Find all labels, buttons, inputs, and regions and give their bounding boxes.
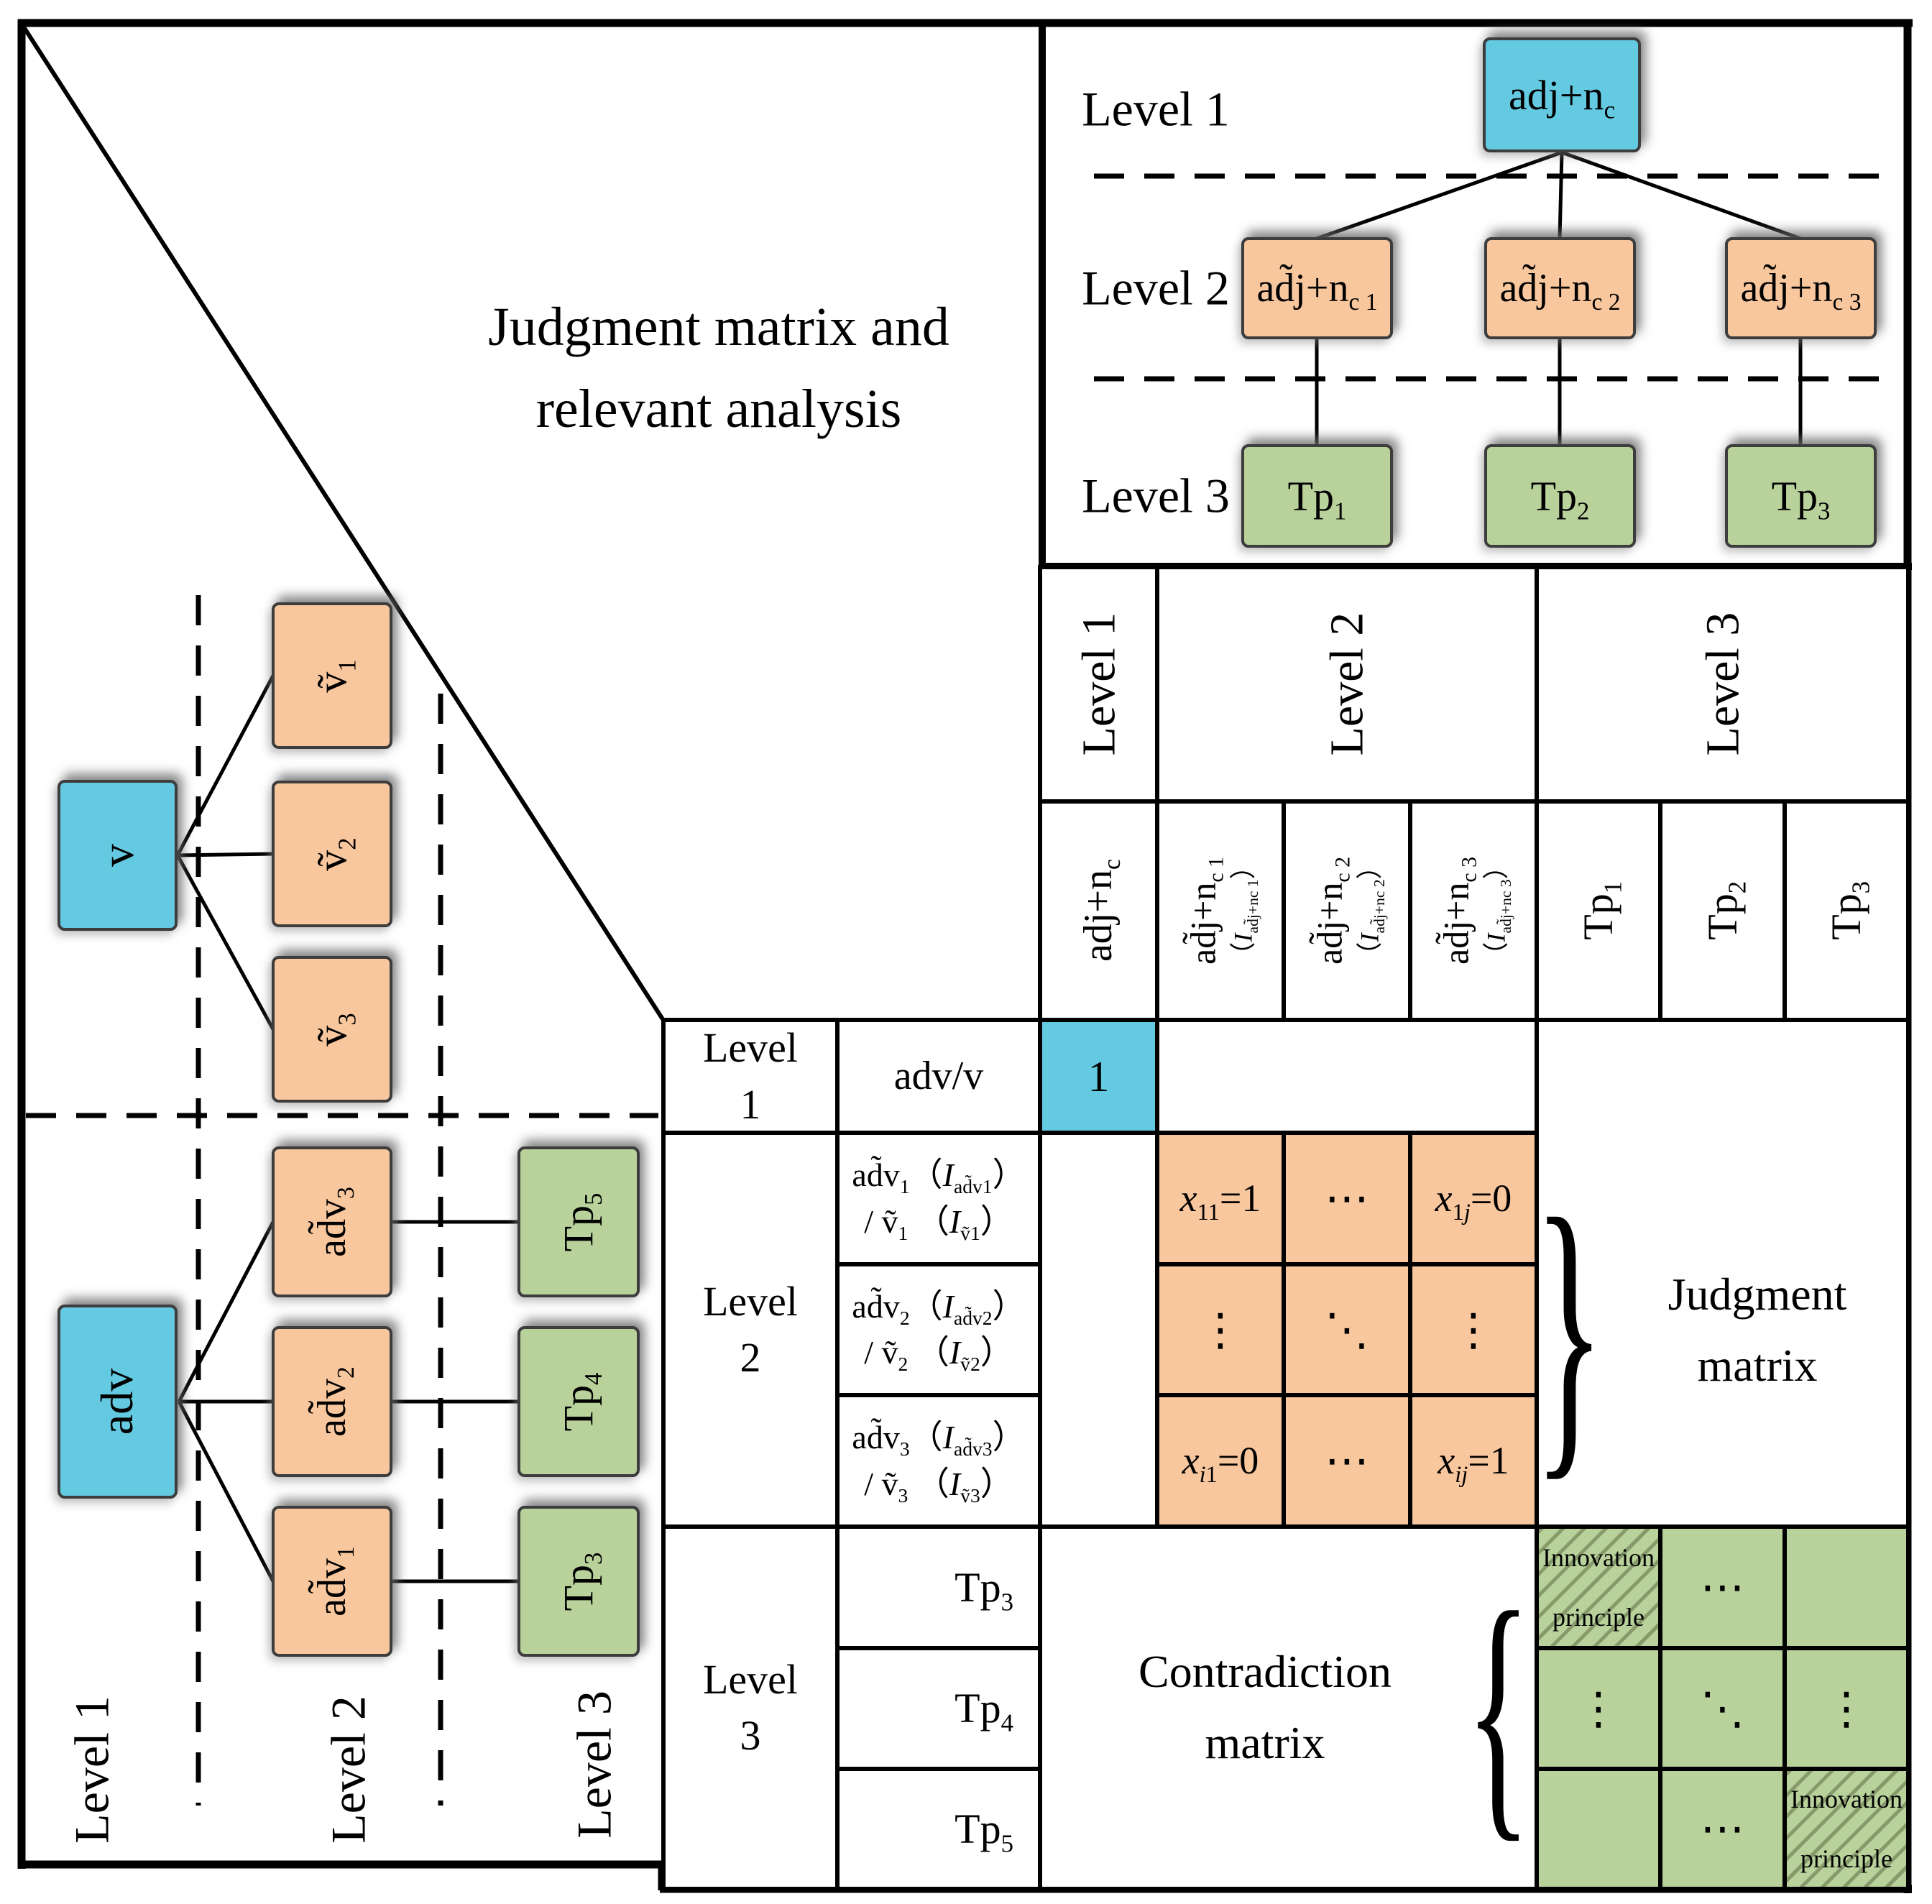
rowgroup-level1-cell: Level 1 xyxy=(661,1018,839,1135)
judgment-matrix-cell-12: ⋯ xyxy=(1282,1131,1412,1266)
colhead-tp1-text: Tp1 xyxy=(1573,881,1624,940)
rowhead-adv1-text: ad̃v1（Iad̃v1）/ ṽ1 （Iṽ1） xyxy=(852,1152,1025,1245)
judgment-matrix-cell-31: xi1=0 xyxy=(1155,1393,1286,1529)
top-tree-leaf3-label: Tp3 xyxy=(1772,472,1831,520)
top-tree-level3-label: Level 3 xyxy=(1082,468,1230,525)
rowhead-adv3-text: ad̃v3（Iad̃v3）/ ṽ3 （Iṽ3） xyxy=(852,1415,1025,1507)
left-tree-tp4-box: Tp4 xyxy=(517,1326,640,1477)
left-tree-adv1-label: ad̃v1 xyxy=(309,1546,355,1616)
empty-cell-adjcol-level2rows xyxy=(1038,1131,1159,1529)
rowhead-tp4-text: Tp4 xyxy=(954,1683,1013,1734)
top-tree-level1-label: Level 1 xyxy=(1082,81,1230,138)
left-tree-v2-label: ṽ2 xyxy=(308,837,356,870)
contradiction-matrix-label: Contradiction matrix xyxy=(1057,1567,1473,1847)
rowhead-tp5-cell: Tp5 xyxy=(835,1767,1042,1891)
contradiction-matrix-cell-13 xyxy=(1782,1524,1910,1650)
contradiction-brace: { xyxy=(1466,1545,1531,1876)
colhead-tp2-text: Tp2 xyxy=(1698,881,1748,940)
left-tree-adv3-box: ad̃v3 xyxy=(272,1146,392,1297)
judgment-matrix-cell-33-value: xij=1 xyxy=(1437,1438,1509,1484)
judgment-matrix-cell-11-value: x11=1 xyxy=(1180,1175,1261,1222)
left-tree-v3-label: ṽ3 xyxy=(308,1013,356,1046)
top-tree-leaf2-box: Tp2 xyxy=(1484,444,1636,548)
judgment-brace-glyph: } xyxy=(1533,1148,1604,1512)
left-tree-v-root-box: v xyxy=(57,780,178,931)
judgment-matrix-cell-22: ⋱ xyxy=(1282,1262,1412,1397)
left-tree-tp3-label: Tp3 xyxy=(555,1552,603,1611)
top-tree-leaf1-label: Tp1 xyxy=(1288,472,1347,520)
left-tree-level2-label: Level 2 xyxy=(321,1696,377,1844)
judgment-matrix-label: Judgment matrix xyxy=(1617,1222,1897,1438)
top-tree-root-box: adj+nc xyxy=(1483,37,1641,152)
contradiction-matrix-cell-22-value: ⋱ xyxy=(1701,1682,1745,1735)
colhead-adjnc1-label: ad̃j+nc 1 xyxy=(1180,853,1227,967)
contradiction-matrix-cell-12: ⋯ xyxy=(1658,1524,1787,1650)
top-tree-child3-box: ad̃j+nc 3 xyxy=(1725,237,1877,339)
judgment-matrix-cell-32-value: ⋯ xyxy=(1325,1434,1369,1487)
colhead-adjnc2-label: ad̃j+nc 2 xyxy=(1307,853,1353,967)
judgment-matrix-cell-33: xij=1 xyxy=(1408,1393,1539,1529)
top-tree-leaf2-label: Tp2 xyxy=(1531,472,1590,520)
judgment-matrix-label-text: Judgment matrix xyxy=(1639,1259,1876,1401)
left-tree-adv3-label: ad̃v3 xyxy=(309,1187,355,1257)
empty-cell-row1-level2 xyxy=(1155,1018,1539,1135)
colhead-adjnc3-note: （Iad̃j+nc 3） xyxy=(1480,853,1514,967)
top-tree-leaf1-box: Tp1 xyxy=(1241,444,1393,548)
top-tree-child1-box: ad̃j+nc 1 xyxy=(1241,237,1393,339)
colhead-adjnc-cell: adj+nc xyxy=(1038,799,1159,1022)
left-tree-adv-root-label: adv xyxy=(91,1369,144,1435)
figure-title-line1: Judgment matrix and xyxy=(402,286,1035,368)
colhead-tp3-cell: Tp3 xyxy=(1782,799,1910,1022)
judgment-matrix-cell-23-value: ⋮ xyxy=(1451,1303,1496,1356)
left-tree-level3-label: Level 3 xyxy=(566,1691,623,1839)
colgroup-level3-text: Level 3 xyxy=(1694,612,1751,756)
rowhead-tp5-text: Tp5 xyxy=(954,1804,1013,1854)
contradiction-matrix-cell-11-value: Innovation principle xyxy=(1540,1528,1658,1647)
colhead-adjnc3-label: ad̃j+nc 3 xyxy=(1433,853,1480,967)
contradiction-matrix-cell-33-value: Innovation principle xyxy=(1788,1770,1906,1889)
top-tree-leaf3-box: Tp3 xyxy=(1725,444,1877,548)
left-tree-tp3-box: Tp3 xyxy=(517,1506,640,1657)
rowgroup-level3-cell: Level 3 xyxy=(661,1524,839,1891)
figure-title: Judgment matrix and relevant analysis xyxy=(402,286,1035,450)
triz-judgment-matrix-figure: Judgment matrix and relevant analysis Le… xyxy=(0,0,1932,1904)
colhead-adjnc-text: adj+nc xyxy=(1075,860,1123,962)
left-tree-tp5-box: Tp5 xyxy=(517,1146,640,1297)
contradiction-matrix-label-text: Contradiction matrix xyxy=(1096,1636,1434,1778)
colhead-tp3-text: Tp3 xyxy=(1821,881,1872,940)
left-tree-v-root-label: v xyxy=(91,844,144,867)
left-tree-adv-root-box: adv xyxy=(57,1305,178,1499)
colgroup-level1-cell: Level 1 xyxy=(1038,565,1159,804)
top-tree-level2-label: Level 2 xyxy=(1082,260,1230,317)
judgment-cell-adv-v: 1 xyxy=(1038,1018,1159,1135)
contradiction-matrix-cell-11: Innovation principle xyxy=(1535,1524,1662,1650)
contradiction-matrix-cell-33: Innovation principle xyxy=(1782,1767,1910,1891)
contradiction-matrix-cell-32-value: ⋯ xyxy=(1701,1802,1745,1855)
colhead-adjnc2-block: ad̃j+nc 2 （Iad̃j+nc 2） xyxy=(1307,853,1387,967)
top-tree-child2-box: ad̃j+nc 2 xyxy=(1484,237,1636,339)
rowhead-adv3-cell: ad̃v3（Iad̃v3）/ ṽ3 （Iṽ3） xyxy=(835,1393,1042,1529)
left-tree-tp4-label: Tp4 xyxy=(555,1372,603,1431)
left-tree-adv1-box: ad̃v1 xyxy=(272,1506,392,1657)
top-tree-child2-label: ad̃j+nc 2 xyxy=(1499,265,1620,311)
colhead-adjnc1-cell: ad̃j+nc 1 （Iad̃j+nc 1） xyxy=(1155,799,1286,1022)
contradiction-matrix-cell-31 xyxy=(1535,1767,1662,1891)
left-tree-v1-label: ṽ1 xyxy=(308,659,356,692)
left-tree-adv2-box: ad̃v2 xyxy=(272,1326,392,1477)
judgment-matrix-cell-13-value: x1j=0 xyxy=(1435,1175,1512,1222)
top-tree-child1-label: ad̃j+nc 1 xyxy=(1256,265,1377,311)
left-tree-v2-box: ṽ2 xyxy=(272,781,392,927)
judgment-matrix-cell-21: ⋮ xyxy=(1155,1262,1286,1397)
figure-title-line2: relevant analysis xyxy=(402,368,1035,450)
colgroup-level3-cell: Level 3 xyxy=(1535,565,1910,804)
judgment-matrix-cell-32: ⋯ xyxy=(1282,1393,1412,1529)
colhead-tp1-cell: Tp1 xyxy=(1535,799,1662,1022)
rowhead-advv-cell: adv/v xyxy=(835,1018,1042,1135)
contradiction-matrix-cell-22: ⋱ xyxy=(1658,1646,1787,1771)
judgment-matrix-cell-22-value: ⋱ xyxy=(1325,1303,1369,1356)
rowhead-adv2-text: ad̃v2（Iad̃v2）/ ṽ2 （Iṽ2） xyxy=(852,1284,1025,1376)
left-tree-level1-label: Level 1 xyxy=(64,1696,121,1844)
contradiction-brace-glyph: { xyxy=(1466,1550,1531,1872)
colhead-adjnc3-cell: ad̃j+nc 3 （Iad̃j+nc 3） xyxy=(1408,799,1539,1022)
rowhead-tp4-cell: Tp4 xyxy=(835,1646,1042,1771)
rowhead-adv1-cell: ad̃v1（Iad̃v1）/ ṽ1 （Iṽ1） xyxy=(835,1131,1042,1266)
colhead-adjnc1-block: ad̃j+nc 1 （Iad̃j+nc 1） xyxy=(1180,853,1261,967)
colhead-tp2-cell: Tp2 xyxy=(1658,799,1787,1022)
colhead-adjnc1-note: （Iad̃j+nc 1） xyxy=(1227,853,1261,967)
rowhead-adv2-cell: ad̃v2（Iad̃v2）/ ṽ2 （Iṽ2） xyxy=(835,1262,1042,1397)
rowhead-tp3-cell: Tp3 xyxy=(835,1524,1042,1650)
judgment-matrix-cell-12-value: ⋯ xyxy=(1325,1172,1369,1225)
judgment-matrix-cell-31-value: xi1=0 xyxy=(1182,1438,1259,1484)
judgment-brace: } xyxy=(1537,1141,1601,1519)
contradiction-matrix-cell-23-value: ⋮ xyxy=(1824,1682,1869,1735)
colgroup-level2-cell: Level 2 xyxy=(1155,565,1539,804)
judgment-matrix-cell-13: x1j=0 xyxy=(1408,1131,1539,1266)
left-tree-tp5-label: Tp5 xyxy=(555,1192,603,1251)
contradiction-matrix-cell-12-value: ⋯ xyxy=(1701,1560,1745,1614)
judgment-matrix-cell-11: x11=1 xyxy=(1155,1131,1286,1266)
judgment-matrix-cell-21-value: ⋮ xyxy=(1198,1303,1243,1356)
left-tree-adv2-label: ad̃v2 xyxy=(309,1366,355,1437)
colgroup-level1-text: Level 1 xyxy=(1070,612,1127,756)
judgment-matrix-cell-23: ⋮ xyxy=(1408,1262,1539,1397)
rowgroup-level2-text: Level 2 xyxy=(688,1274,814,1386)
left-tree-v1-box: ṽ1 xyxy=(272,602,392,749)
contradiction-matrix-cell-23: ⋮ xyxy=(1782,1646,1910,1771)
contradiction-matrix-cell-32: ⋯ xyxy=(1658,1767,1787,1891)
rowgroup-level1-text: Level 1 xyxy=(688,1020,814,1133)
judgment-cell-adv-v-value: 1 xyxy=(1088,1051,1110,1103)
colhead-adjnc2-note: （Iad̃j+nc 2） xyxy=(1353,853,1387,967)
top-tree-root-label: adj+nc xyxy=(1509,71,1615,119)
colhead-adjnc3-block: ad̃j+nc 3 （Iad̃j+nc 3） xyxy=(1433,853,1514,967)
rowhead-tp3-text: Tp3 xyxy=(954,1563,1013,1613)
rowgroup-level2-cell: Level 2 xyxy=(661,1131,839,1529)
rowgroup-level3-text: Level 3 xyxy=(688,1652,814,1765)
colhead-adjnc2-cell: ad̃j+nc 2 （Iad̃j+nc 2） xyxy=(1282,799,1412,1022)
top-tree-child3-label: ad̃j+nc 3 xyxy=(1740,265,1861,311)
left-tree-v3-box: ṽ3 xyxy=(272,956,392,1103)
contradiction-matrix-cell-21: ⋮ xyxy=(1535,1646,1662,1771)
contradiction-matrix-cell-21-value: ⋮ xyxy=(1576,1682,1621,1735)
colgroup-level2-text: Level 2 xyxy=(1318,612,1375,756)
rowhead-advv-text: adv/v xyxy=(894,1052,983,1100)
